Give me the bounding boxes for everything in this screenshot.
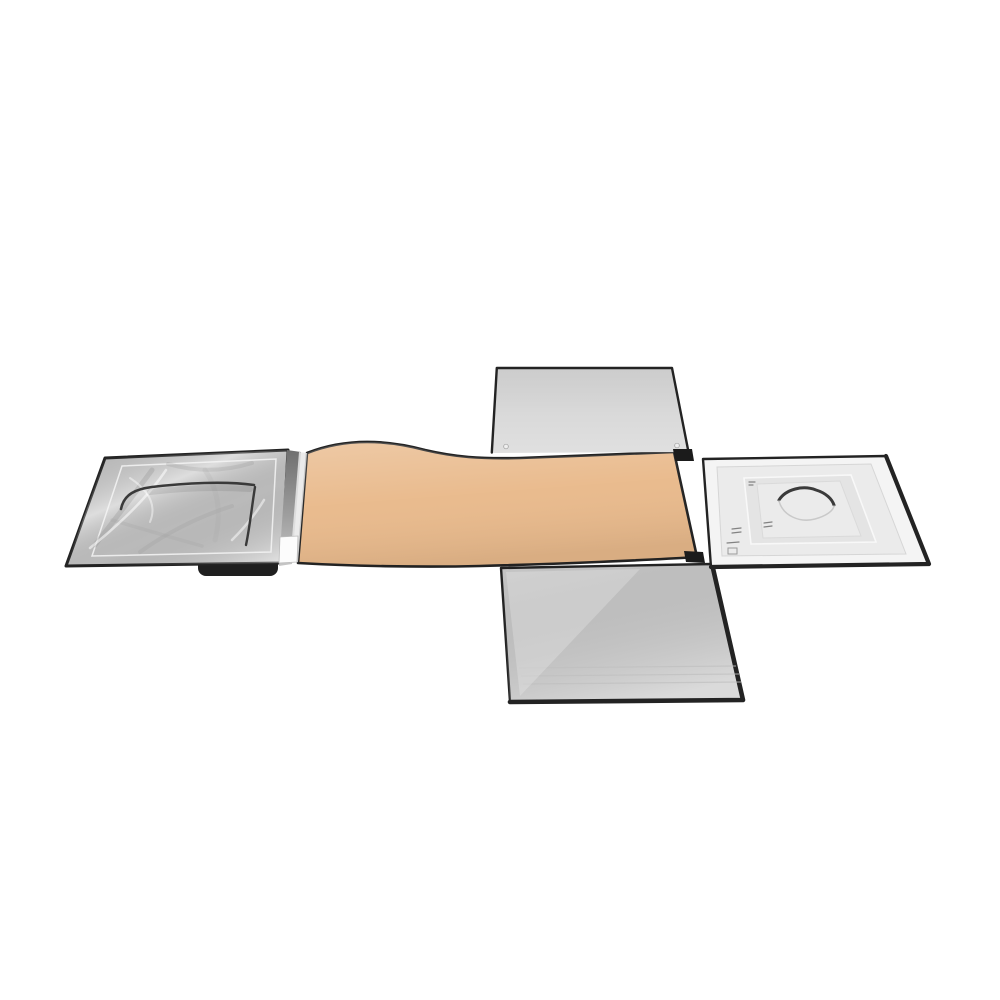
product-photo: [0, 0, 1000, 1000]
right-lid-panel: [703, 456, 929, 567]
top-panel-snap-right: [675, 443, 680, 448]
tab-bottom-right: [684, 551, 705, 563]
light-tent-illustration: [0, 0, 1000, 1000]
bottom-diffuser-panel: [501, 564, 743, 702]
center-base-panel: [298, 442, 697, 567]
top-panel-snap-left: [504, 444, 509, 449]
tab-top-right: [673, 449, 694, 461]
top-diffuser-panel: [492, 368, 689, 453]
label-tag: [279, 536, 298, 563]
top-panel-shading: [492, 368, 688, 453]
base-fabric-shading: [298, 442, 697, 567]
left-reflector-panel: [66, 450, 288, 576]
